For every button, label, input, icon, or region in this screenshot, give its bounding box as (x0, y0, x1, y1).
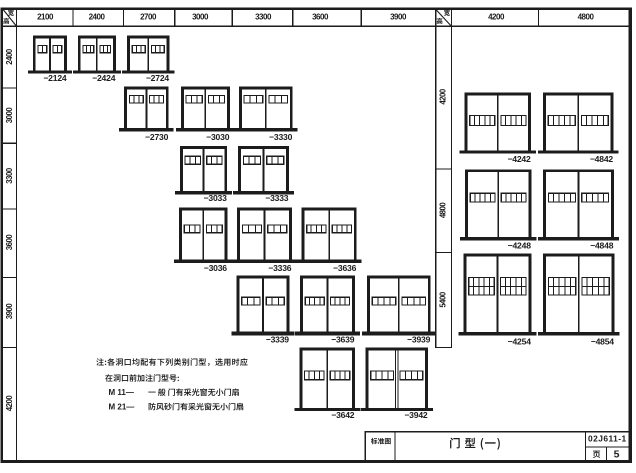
svg-text:5400: 5400 (439, 291, 448, 308)
svg-text:−4248: −4248 (508, 240, 532, 250)
svg-text:5: 5 (614, 448, 620, 460)
svg-text:−3939: −3939 (407, 335, 431, 345)
svg-text:2400: 2400 (89, 12, 106, 21)
svg-text:4200: 4200 (488, 12, 505, 21)
svg-text:3300: 3300 (5, 167, 14, 184)
svg-text:−4854: −4854 (591, 336, 615, 346)
svg-text:4200: 4200 (5, 395, 14, 412)
svg-text:−2724: −2724 (146, 73, 170, 83)
svg-text:−3030: −3030 (206, 132, 230, 142)
svg-text:M 21—: M 21— (109, 403, 135, 412)
svg-text:2700: 2700 (140, 12, 157, 21)
svg-text:4200: 4200 (439, 88, 448, 105)
svg-text:−3336: −3336 (268, 263, 292, 273)
svg-text:3000: 3000 (5, 107, 14, 124)
svg-text:−4848: −4848 (590, 240, 614, 250)
svg-text:02J611-1: 02J611-1 (588, 434, 627, 444)
svg-text:3300: 3300 (255, 12, 272, 21)
svg-text:3600: 3600 (5, 234, 14, 251)
svg-text:−4842: −4842 (590, 154, 614, 164)
svg-text:−3033: −3033 (204, 193, 228, 203)
svg-text:−2124: −2124 (43, 73, 67, 83)
svg-text:2100: 2100 (37, 12, 54, 21)
svg-text:3900: 3900 (5, 303, 14, 320)
svg-text:3000: 3000 (192, 12, 209, 21)
svg-text:−3636: −3636 (333, 263, 357, 273)
svg-text:−3333: −3333 (265, 193, 289, 203)
svg-text:−2424: −2424 (92, 73, 116, 83)
svg-text:M 11—: M 11— (109, 388, 134, 397)
svg-text:−2730: −2730 (145, 132, 169, 142)
svg-text:4800: 4800 (578, 12, 595, 21)
svg-text:−3036: −3036 (204, 263, 228, 273)
svg-text:3600: 3600 (312, 12, 329, 21)
svg-text:−3639: −3639 (331, 335, 355, 345)
svg-text:−3339: −3339 (266, 335, 290, 345)
svg-text:2400: 2400 (5, 48, 14, 65)
svg-text:−3330: −3330 (269, 132, 293, 142)
svg-text:−3642: −3642 (331, 410, 355, 420)
svg-text:−4242: −4242 (507, 154, 531, 164)
svg-text:−3942: −3942 (404, 410, 428, 420)
svg-text:−4254: −4254 (508, 336, 532, 346)
svg-text:3900: 3900 (390, 12, 407, 21)
svg-text:4800: 4800 (439, 202, 448, 219)
